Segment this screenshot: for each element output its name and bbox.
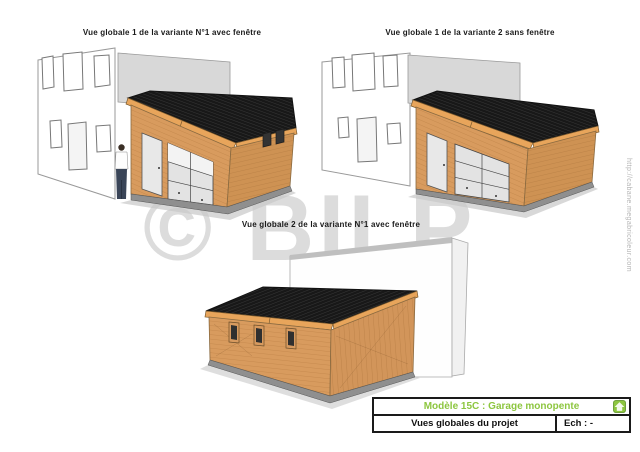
view1-rendering [38, 48, 297, 220]
view2-rendering [322, 53, 599, 218]
model-title: Modèle 15C : Garage monopente [424, 401, 580, 412]
view1-side-window-1 [263, 132, 271, 147]
view2-garage [408, 91, 599, 218]
view1-garage [120, 91, 297, 220]
scale-label: Ech : - [555, 416, 629, 431]
view1-side-door [142, 133, 162, 196]
view3-back-window-3 [286, 328, 296, 349]
plan-page: © BILP http://cabane.megabricoleur.com V… [0, 0, 640, 452]
view3-garage [200, 287, 420, 409]
bilp-logo-icon [613, 400, 626, 413]
view1-side-window-2 [276, 129, 284, 144]
title-block-model-row: Modèle 15C : Garage monopente [374, 399, 629, 414]
person-figure [115, 144, 128, 199]
title-block: Modèle 15C : Garage monopente Vues globa… [372, 397, 631, 433]
view3-rendering [200, 237, 468, 409]
title-block-sheet-row: Vues globales du projet Ech : - [374, 414, 629, 431]
view2-side-door [427, 133, 447, 192]
view3-back-window-2 [254, 325, 264, 346]
view3-back-window-1 [229, 322, 239, 343]
view3-caption: Vue globale 2 de la variante N°1 avec fe… [191, 220, 471, 229]
view2-caption: Vue globale 1 de la variante 2 sans fenê… [330, 28, 610, 37]
view1-caption: Vue globale 1 de la variante N°1 avec fe… [32, 28, 312, 37]
sheet-title: Vues globales du projet [374, 416, 555, 431]
